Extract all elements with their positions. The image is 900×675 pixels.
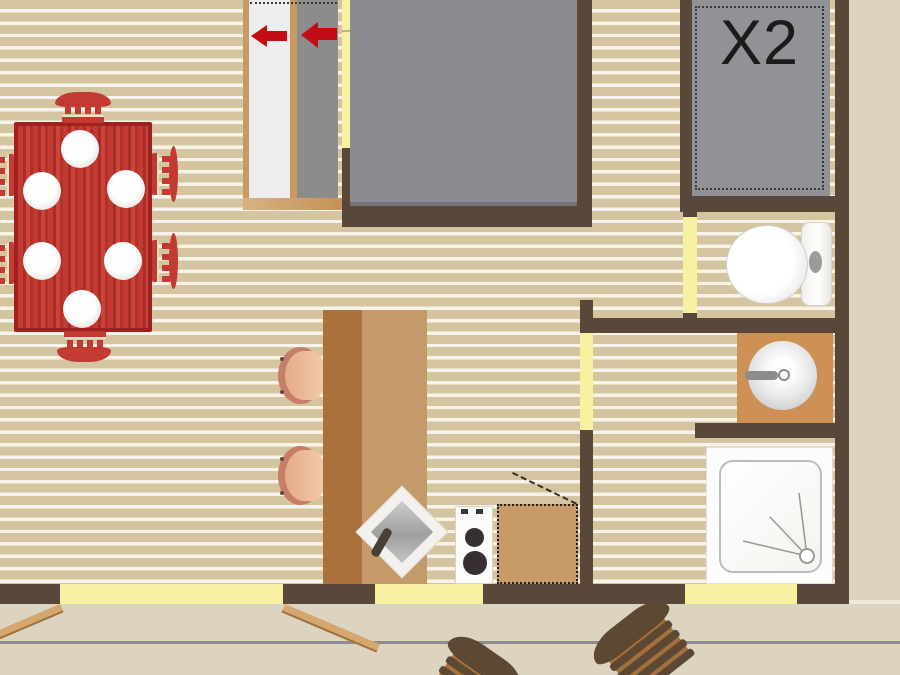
wardrobe-dotted-line [250,2,337,4]
chair-slat [95,105,101,114]
stool-bolt [280,390,284,394]
stool-seat [285,450,323,501]
slide-arrow-shaft [318,28,337,40]
bar-stool [278,347,323,404]
stool-seat [285,351,323,400]
bar-stool [278,446,323,505]
chair-seat [62,115,104,123]
shower-spray-icon [707,448,834,585]
chair-slat [0,278,5,284]
fridge-worktop-dotted [497,504,578,584]
dining-chair [57,331,111,362]
chair-seat [7,242,14,284]
window-kitchen [375,584,483,604]
chair-seat [152,240,159,282]
plate [23,242,61,280]
chair-slat [75,105,81,114]
slide-arrow-icon [301,22,318,48]
window-shower-room [685,584,797,604]
stool-bolt [280,491,284,495]
wardrobe-base-bar [243,198,343,210]
wall-exterior-right [835,0,849,604]
plate [23,172,61,210]
chair-slat [97,340,103,349]
chair-back [55,92,111,107]
slide-arrow-icon [251,25,267,47]
wall-bedroom-left [342,148,350,206]
toilet-bowl [726,225,808,304]
washbasin-drain-icon [778,369,790,381]
hob-burner [463,551,487,575]
wall-wc-left [683,313,697,333]
window-bedroom [342,0,350,148]
wall-bunkroom-left [680,0,692,196]
window-hallway [580,333,593,430]
chair-back [57,347,111,362]
chair-slat [65,105,71,114]
chair-back [169,146,178,202]
double-bed [348,0,577,206]
wall-exterior-bottom [283,584,375,604]
dining-chair [0,147,14,203]
wall-shower-top [695,423,835,438]
dining-chair [152,233,178,289]
dining-chair [0,235,14,291]
dining-chair [55,92,111,123]
wall-bedroom-bottom [342,206,577,227]
chair-seat [152,153,159,195]
chair-slat [0,179,5,185]
stool-bolt [280,457,284,461]
window-mullion [342,30,350,32]
chair-slat [0,245,5,251]
slide-arrow-shaft [267,31,287,41]
hob-knob [476,509,483,514]
chair-slat [85,105,91,114]
wardrobe-frame-middle [290,0,297,198]
chair-slat [77,340,83,349]
wall-wc-top [680,196,849,212]
bunk-capacity-label: X2 [689,12,830,75]
wall-hallway-vertical [580,430,593,604]
window-living-room [60,584,283,604]
plate [61,130,99,168]
chair-slat [67,340,73,349]
hob-burner [465,528,484,547]
wall-hallway-horizontal [580,318,835,333]
chair-seat [64,331,106,339]
window-wc [683,217,697,313]
wall-bedroom-right [577,0,592,227]
dining-chair [152,146,178,202]
kitchen-counter-edge [323,310,362,587]
deck-edge-line-right [849,600,900,604]
wall-exterior-bottom [797,584,849,604]
floor-plan: X2 [0,0,900,675]
outside-area-right [849,0,900,604]
chair-slat [0,157,5,163]
chair-slat [0,168,5,174]
chair-slat [0,190,5,196]
hob-knob [461,509,468,514]
chair-slat [0,267,5,273]
plate [63,290,101,328]
stool-bolt [280,357,284,361]
wall-exterior-bottom [0,584,60,604]
washbasin-faucet-icon [745,371,778,380]
chair-slat [0,256,5,262]
chair-slat [87,340,93,349]
toilet-flush-button [809,251,822,273]
bunk-bed: X2 [689,0,830,196]
shower-tray [706,447,833,584]
plate [107,170,145,208]
chair-seat [7,154,14,196]
plate [104,242,142,280]
chair-back [169,233,178,289]
